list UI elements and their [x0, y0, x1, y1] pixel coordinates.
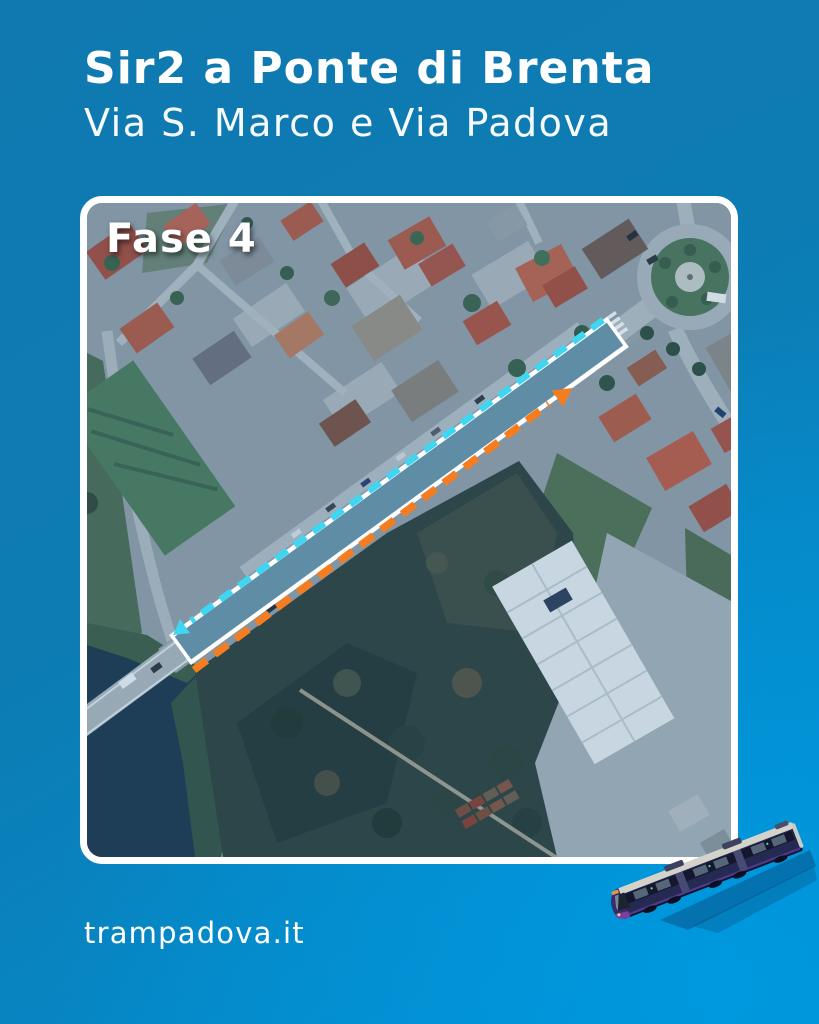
header: Sir2 a Ponte di Brenta Via S. Marco e Vi… — [84, 44, 654, 145]
aerial-map — [80, 196, 738, 864]
page-subtitle: Via S. Marco e Via Padova — [84, 101, 654, 145]
tram-illustration — [608, 800, 819, 950]
photo-tint — [87, 203, 731, 857]
aerial-photo — [87, 203, 731, 857]
footer-site-url: trampadova.it — [84, 916, 305, 950]
phase-label: Fase 4 — [106, 216, 257, 262]
page-title: Sir2 a Ponte di Brenta — [84, 44, 654, 95]
